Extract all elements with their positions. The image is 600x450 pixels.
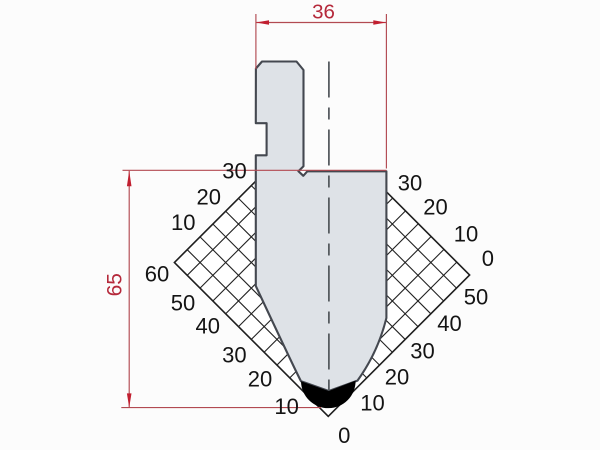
svg-text:50: 50	[171, 290, 195, 315]
svg-text:20: 20	[385, 365, 409, 390]
svg-text:20: 20	[248, 366, 272, 391]
svg-text:40: 40	[437, 311, 461, 336]
svg-text:20: 20	[197, 184, 221, 209]
svg-text:10: 10	[274, 394, 298, 419]
svg-text:60: 60	[145, 262, 169, 287]
svg-text:50: 50	[464, 285, 488, 310]
svg-text:30: 30	[222, 159, 246, 184]
svg-text:30: 30	[398, 171, 422, 196]
svg-text:0: 0	[338, 423, 350, 448]
svg-text:20: 20	[423, 195, 447, 220]
svg-text:30: 30	[222, 343, 246, 368]
svg-text:0: 0	[482, 246, 494, 271]
svg-text:10: 10	[171, 210, 195, 235]
svg-text:36: 36	[312, 1, 335, 24]
svg-text:10: 10	[360, 391, 384, 416]
svg-text:10: 10	[454, 222, 478, 247]
svg-text:65: 65	[104, 273, 127, 296]
svg-text:40: 40	[196, 313, 220, 338]
svg-text:30: 30	[410, 339, 434, 364]
